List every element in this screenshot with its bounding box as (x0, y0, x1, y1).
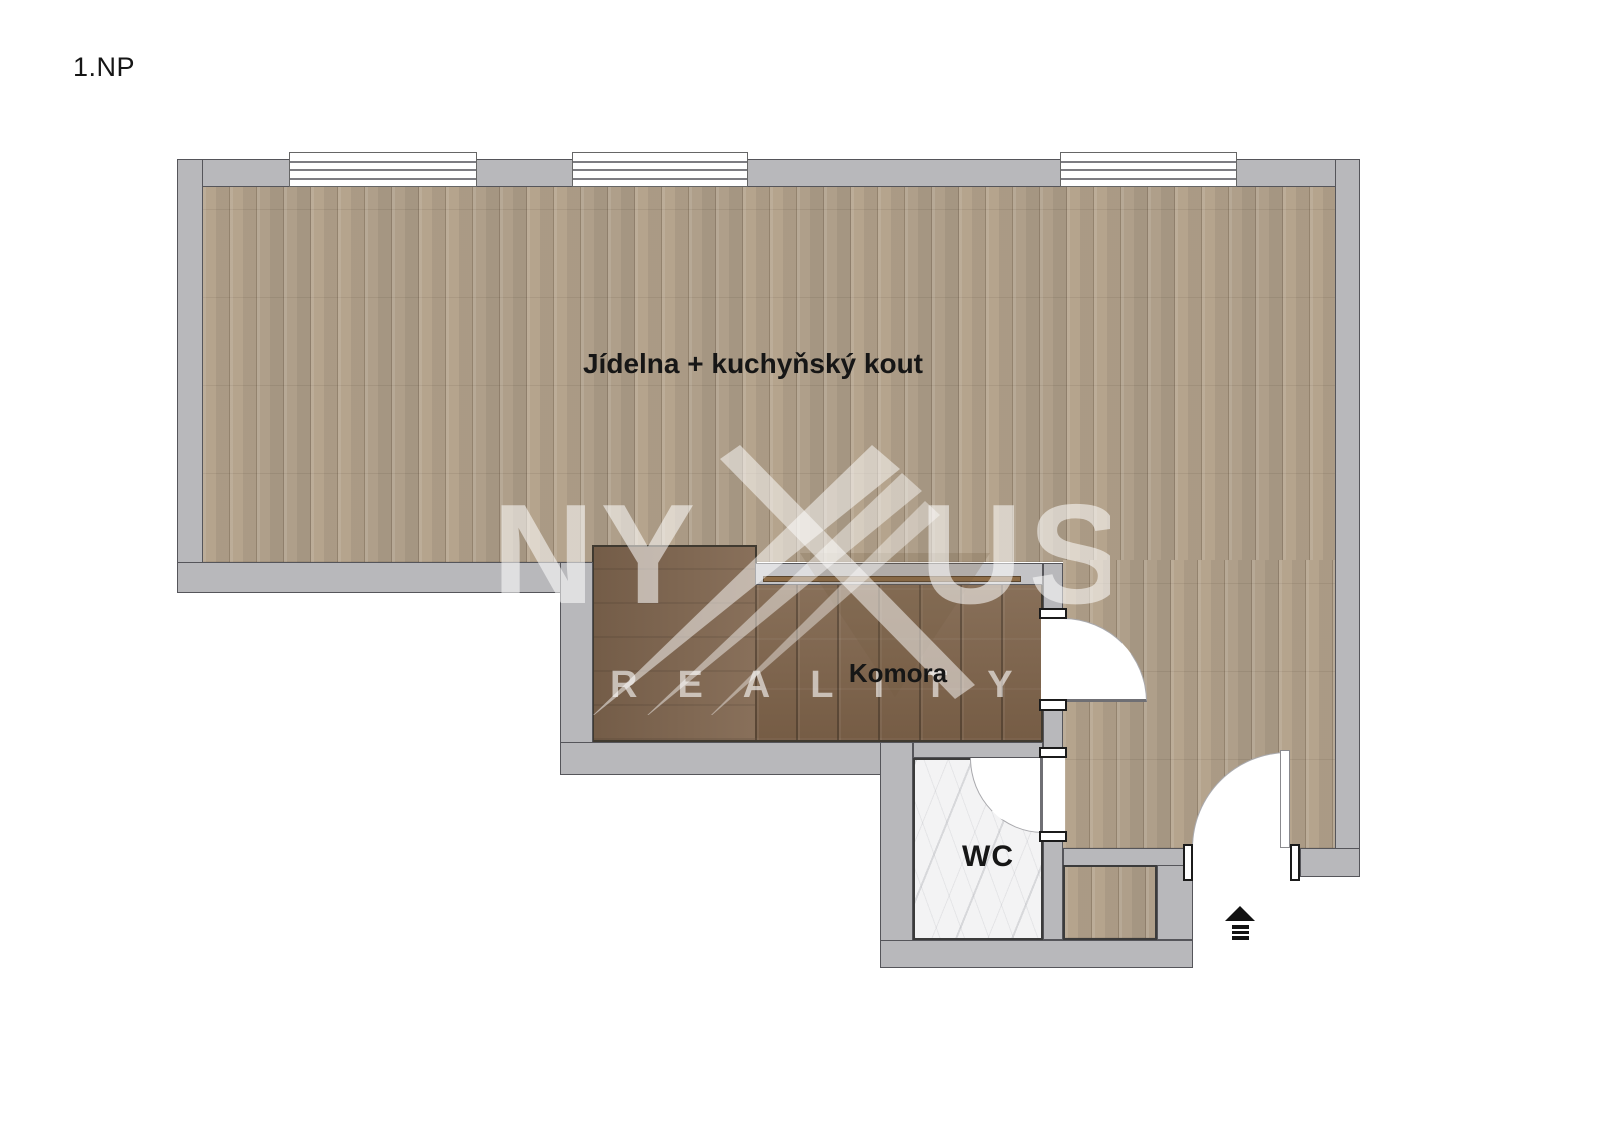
window-glazing-line (1061, 169, 1236, 171)
entry-door-opening (1193, 845, 1290, 878)
wall-entry-right-band (1300, 848, 1360, 877)
wall-pantry-bottom (560, 742, 913, 775)
pantry-floor-right (755, 563, 1043, 742)
counter-edge-line (763, 576, 1021, 582)
window-glazing-line (573, 178, 747, 180)
door-jamb (1039, 608, 1067, 619)
window-glazing-line (573, 161, 747, 163)
wall-bottom (880, 940, 1193, 968)
hallway-floor (1063, 560, 1335, 848)
wall-right (1335, 159, 1360, 877)
window-glazing-line (290, 178, 476, 180)
pantry-label: Komora (798, 658, 998, 689)
pantry-door-opening (1041, 618, 1065, 700)
wall-hall-bottom-band (1063, 848, 1193, 866)
dining-room-label: Jídelna + kuchyňský kout (420, 348, 1086, 380)
arrow-head (1225, 906, 1255, 921)
door-jamb (1039, 747, 1067, 758)
floor-plan: 1.NP (0, 0, 1599, 1130)
arrow-step (1232, 931, 1249, 935)
arrow-step (1232, 936, 1249, 940)
window-glazing-line (1061, 178, 1236, 180)
door-jamb (1290, 844, 1300, 881)
door-jamb (1039, 831, 1067, 842)
window-glazing-line (573, 169, 747, 171)
wall-wc-top (913, 742, 1043, 758)
closet-floor (1063, 865, 1157, 940)
window-glazing-line (290, 169, 476, 171)
pantry-counter-strip (755, 563, 1043, 585)
door-jamb (1183, 844, 1193, 881)
window-2 (572, 152, 748, 187)
door-jamb (1039, 699, 1067, 711)
window-3 (1060, 152, 1237, 187)
wall-left (177, 159, 203, 593)
floor-level-label: 1.NP (73, 52, 135, 83)
window-glazing-line (290, 161, 476, 163)
wc-label: WC (938, 840, 1038, 874)
wall-wc-left (880, 742, 913, 968)
pantry-floor-left (592, 545, 757, 742)
arrow-step (1232, 925, 1249, 929)
entry-door-leaf (1280, 750, 1290, 848)
wc-door-opening (1041, 758, 1065, 833)
window-1 (289, 152, 477, 187)
wall-bottom-left (177, 562, 593, 593)
window-glazing-line (1061, 161, 1236, 163)
entrance-arrow-icon (1225, 906, 1255, 940)
